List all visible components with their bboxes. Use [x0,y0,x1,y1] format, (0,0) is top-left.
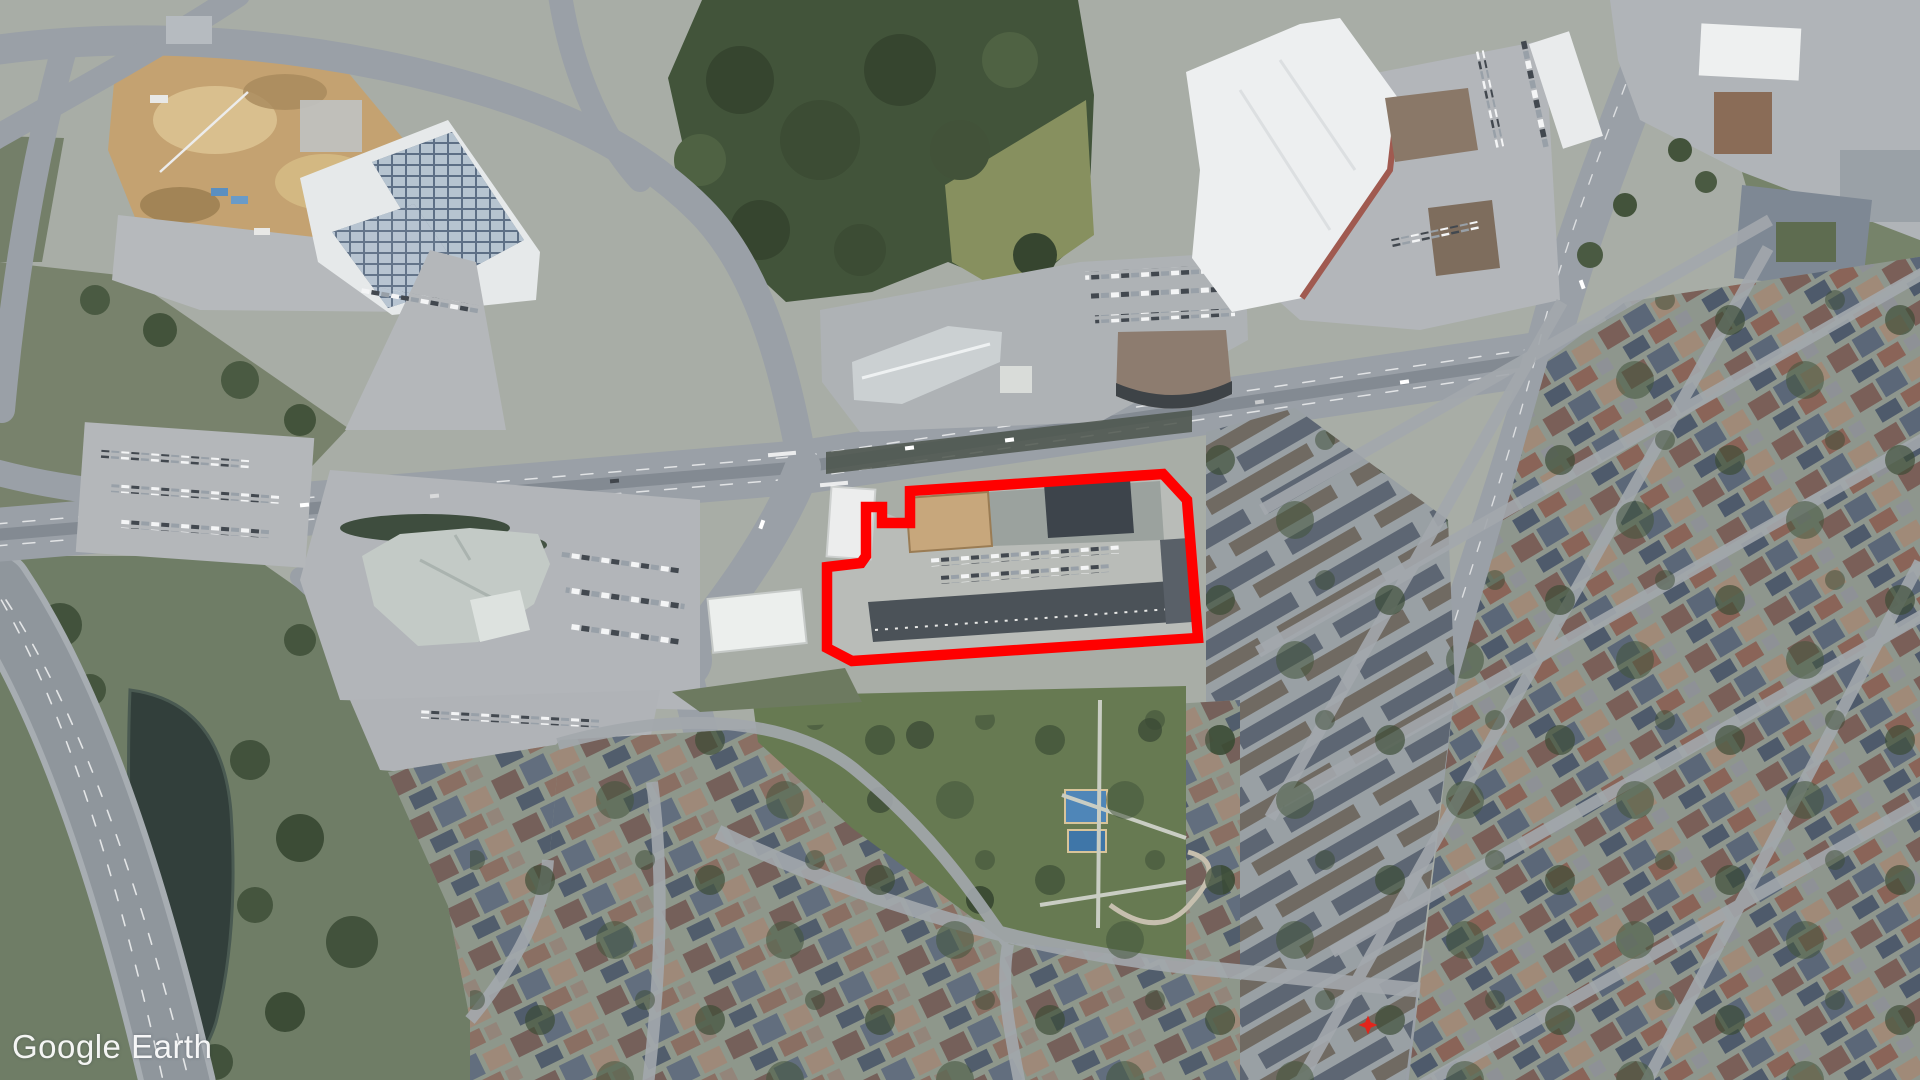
retail-building-white [708,589,807,653]
bigbox-plaza [1186,18,1560,330]
google-earth-viewport[interactable]: Google Earth [0,0,1920,1080]
google-earth-watermark: Google Earth [12,1028,212,1066]
beige-building [906,492,992,552]
satellite-map[interactable] [0,0,1920,1080]
